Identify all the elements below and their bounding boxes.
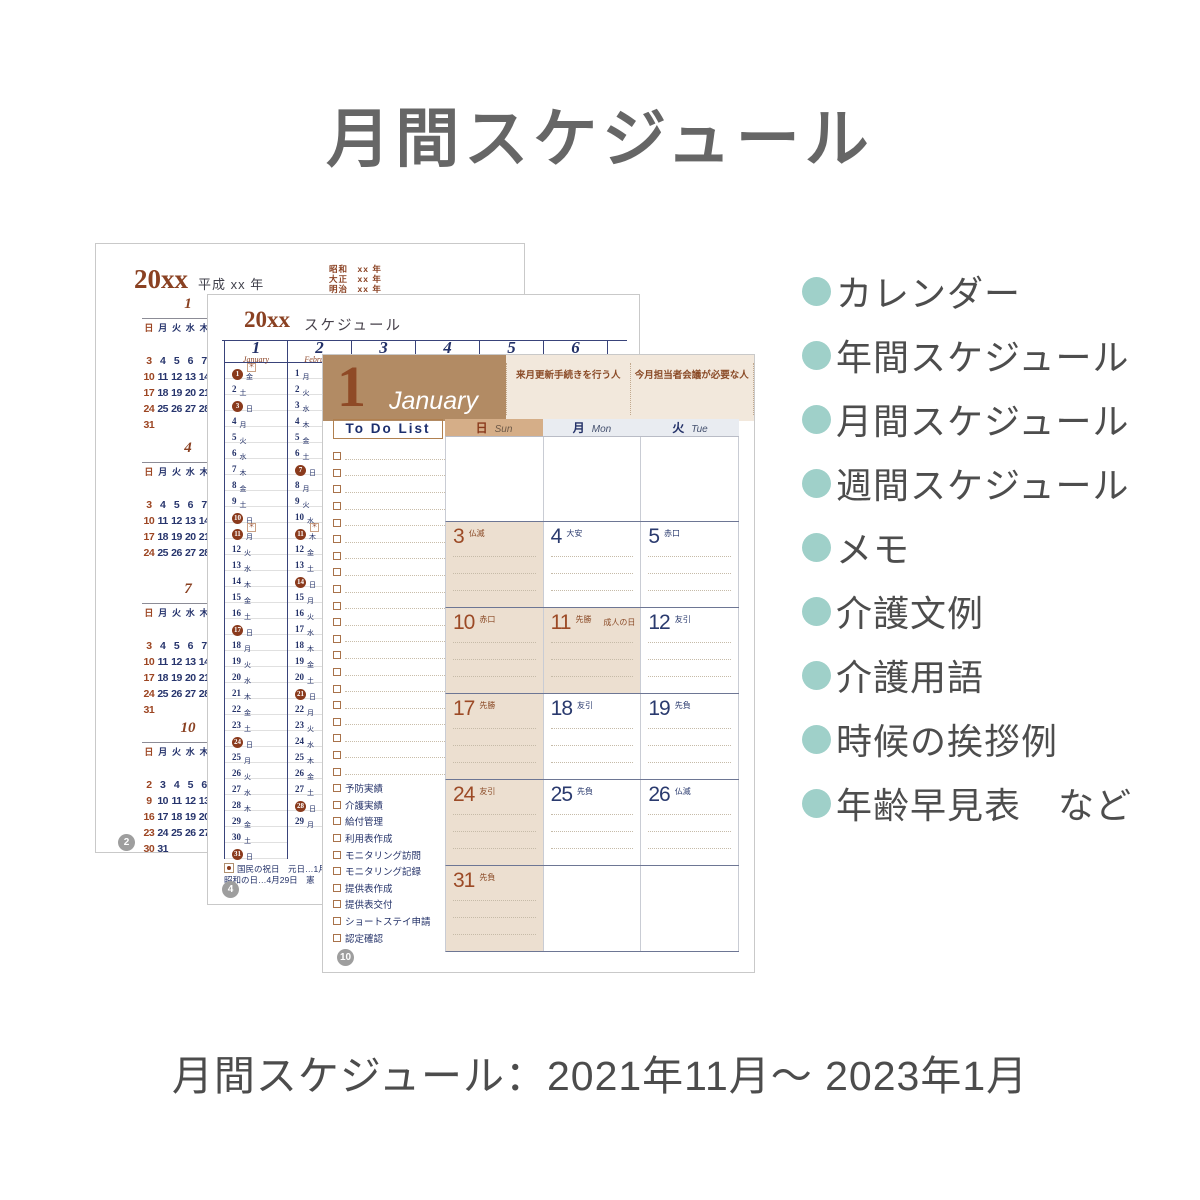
week-row: 17先勝18友引19先負: [445, 694, 739, 780]
todo-row: 給付管理: [333, 813, 445, 830]
day-cell: 18友引: [544, 694, 642, 779]
day-header-cell: 月Mon: [543, 419, 641, 436]
date-cell: 3: [142, 640, 156, 652]
day-cell: 12友引: [641, 608, 739, 693]
day-number: 24: [295, 736, 304, 746]
feature-item: 週間スケジュール: [802, 464, 1132, 502]
feature-label: 介護文例: [836, 585, 984, 637]
weekday-cell: 日: [142, 745, 156, 758]
schedule-day-row: 23土: [225, 715, 287, 731]
page-number-badge: 4: [222, 881, 239, 898]
checkbox-icon: [333, 734, 341, 742]
date-cell: 26: [170, 688, 184, 700]
checkbox-icon: [333, 917, 341, 925]
feature-item: 年齢早見表 など: [802, 784, 1132, 822]
minical-month-number: 10: [168, 720, 208, 740]
bullet-icon: [802, 469, 831, 498]
todo-row: [333, 763, 445, 780]
day-number: 22: [232, 704, 241, 714]
day-number: 14: [232, 576, 241, 586]
todo-row: [333, 714, 445, 731]
checkbox-icon: [333, 668, 341, 676]
rokuyo-label: 友引: [577, 701, 593, 710]
month-number: 3: [352, 341, 415, 355]
date-cell: 24: [156, 827, 170, 839]
todo-list: 予防実績介護実績給付管理利用表作成モニタリング訪問モニタリング記録提供表作成提供…: [333, 448, 445, 946]
weekday-cell: 火: [170, 745, 184, 758]
date-cell: 16: [142, 811, 156, 823]
weekday-cell: 火: [170, 606, 184, 619]
todo-row: [333, 548, 445, 565]
date-number: 24: [453, 783, 474, 806]
checkbox-icon: [333, 685, 341, 693]
rokuyo-label: 先負: [479, 873, 495, 882]
rokuyo-label: 仏滅: [469, 529, 485, 538]
writing-line: [453, 848, 536, 849]
schedule-day-row: 17日: [225, 619, 287, 635]
schedule-day-row: 28木: [225, 795, 287, 811]
date-cell: 19: [170, 672, 184, 684]
checkbox-icon: [333, 585, 341, 593]
date-cell: 6: [183, 355, 197, 367]
todo-writing-line: [345, 524, 445, 526]
day-number: 26: [232, 768, 241, 778]
todo-writing-line: [345, 541, 445, 543]
day-number: 15: [232, 592, 241, 602]
date-cell: 17: [142, 672, 156, 684]
day-number: 8: [295, 480, 300, 490]
weekday-cell: 日: [142, 321, 156, 334]
footnote-text: 国民の祝日 元日…1月: [237, 864, 327, 874]
date-cell: 24: [142, 547, 156, 559]
checkbox-icon: [333, 934, 341, 942]
schedule-day-row: 24日: [225, 731, 287, 747]
week-row: 24友引25先負26仏滅: [445, 780, 739, 866]
feature-label: 月間スケジュール: [836, 393, 1129, 445]
day-cell: 4大安: [544, 522, 642, 607]
schedule-day-row: 12火: [225, 539, 287, 555]
writing-line: [453, 659, 536, 660]
bullet-icon: [802, 533, 831, 562]
era-line: 昭和 xx 年: [329, 264, 382, 274]
month-number: 2: [288, 341, 351, 355]
day-number: 10: [295, 512, 304, 522]
holiday-mark-icon: ＊: [247, 363, 256, 372]
todo-row: [333, 647, 445, 664]
date-cell: 31: [142, 704, 156, 716]
writing-line: [453, 917, 536, 918]
writing-line: [648, 642, 731, 643]
day-number: 22: [295, 704, 304, 714]
todo-label: 給付管理: [345, 814, 383, 828]
day-header-cell: 日Sun: [445, 419, 543, 436]
date-cell: 13: [183, 515, 197, 527]
writing-line: [551, 831, 634, 832]
date-cell: 5: [170, 499, 184, 511]
schedule-day-row: 10日: [225, 507, 287, 523]
day-cell: [446, 437, 544, 521]
day-number: 29: [295, 816, 304, 826]
writing-line: [453, 590, 536, 591]
schedule-day-row: 14木: [225, 571, 287, 587]
month-name: January: [389, 387, 478, 416]
day-header-jp: 火: [672, 421, 684, 435]
weekday-cell: 日: [142, 465, 156, 478]
todo-label: 提供表作成: [345, 881, 393, 895]
minical-month-number: 1: [168, 296, 208, 316]
month-number: 4: [416, 341, 479, 355]
day-number: 15: [295, 592, 304, 602]
day-number: 26: [295, 768, 304, 778]
todo-label: モニタリング訪問: [345, 848, 421, 862]
date-cell: 26: [183, 827, 197, 839]
day-number: 3: [295, 400, 300, 410]
month-grid: 日Sun月Mon火Tue 3仏滅4大安5赤口10赤口11先勝成人の日12友引17…: [445, 419, 739, 952]
day-cell: 11先勝成人の日: [544, 608, 642, 693]
date-number: 4: [551, 525, 562, 548]
writing-line: [551, 590, 634, 591]
date-cell: 6: [183, 640, 197, 652]
feature-label: メモ: [836, 521, 910, 573]
day-number: 5: [232, 432, 237, 442]
date-number: 18: [551, 697, 572, 720]
day-header-cell: 火Tue: [641, 419, 739, 436]
week-row: 10赤口11先勝成人の日12友引: [445, 608, 739, 694]
todo-writing-line: [345, 756, 445, 758]
rokuyo-label: 先負: [577, 787, 593, 796]
month-header-band: 1 January 来月更新手続きを行う人今月担当者会議が必要な人: [323, 355, 754, 421]
date-cell: 10: [142, 515, 156, 527]
day-number: 4: [295, 416, 300, 426]
todo-row: [333, 730, 445, 747]
feature-item: 月間スケジュール: [802, 400, 1132, 438]
date-cell: 24: [142, 688, 156, 700]
todo-title: To Do List: [333, 419, 443, 439]
holiday-mark-icon: ＊: [247, 523, 256, 532]
date-cell: 3: [156, 779, 170, 791]
date-number: 11: [551, 611, 571, 634]
checkbox-icon: [333, 602, 341, 610]
weekday-cell: 火: [170, 465, 184, 478]
rokuyo-label: 先勝: [479, 701, 495, 710]
date-cell: 11: [156, 656, 170, 668]
holiday-legend-icon: [224, 863, 234, 873]
writing-line: [648, 556, 731, 557]
date-cell: 25: [156, 403, 170, 415]
todo-label: 予防実績: [345, 781, 383, 795]
weekday-cell: 水: [183, 606, 197, 619]
date-cell: 11: [156, 515, 170, 527]
month-weeks: 3仏滅4大安5赤口10赤口11先勝成人の日12友引17先勝18友引19先負24友…: [445, 437, 739, 952]
footnote-line: 昭和の日…4月29日 憲: [224, 875, 327, 886]
page-number-badge: 2: [118, 834, 135, 851]
feature-item: カレンダー: [802, 272, 1132, 310]
checkbox-icon: [333, 701, 341, 709]
todo-row: [333, 631, 445, 648]
todo-writing-line: [345, 640, 445, 642]
date-cell: 11: [170, 795, 184, 807]
writing-line: [453, 762, 536, 763]
date-cell: 25: [156, 547, 170, 559]
todo-row: [333, 581, 445, 598]
rokuyo-label: 先負: [675, 701, 691, 710]
writing-line: [453, 745, 536, 746]
checkbox-icon: [333, 817, 341, 825]
writing-line: [648, 590, 731, 591]
writing-line: [551, 676, 634, 677]
day-number: 29: [232, 816, 241, 826]
todo-writing-line: [345, 557, 445, 559]
weekday-cell: 日: [142, 606, 156, 619]
todo-row: [333, 680, 445, 697]
todo-row: [333, 498, 445, 515]
todo-label: 利用表作成: [345, 831, 393, 845]
day-number: 20: [232, 672, 241, 682]
date-cell: 18: [156, 672, 170, 684]
weekday-cell: 水: [183, 321, 197, 334]
day-number: 21: [232, 688, 241, 698]
bullet-icon: [802, 789, 831, 818]
week-row: 31先負: [445, 866, 739, 952]
writing-line: [551, 573, 634, 574]
writing-line: [453, 728, 536, 729]
checkbox-icon: [333, 718, 341, 726]
writing-line: [551, 762, 634, 763]
date-cell: 4: [156, 640, 170, 652]
day-number: 13: [232, 560, 241, 570]
checkbox-icon: [333, 768, 341, 776]
date-cell: 11: [156, 371, 170, 383]
todo-writing-line: [345, 574, 445, 576]
footnote-line: 国民の祝日 元日…1月: [224, 863, 327, 875]
writing-line: [453, 814, 536, 815]
schedule-day-row: 22金: [225, 699, 287, 715]
year-label: 20xx: [134, 264, 188, 295]
schedule-day-row: 1金＊: [225, 363, 287, 379]
footnotes: 国民の祝日 元日…1月 昭和の日…4月29日 憲: [224, 863, 327, 886]
todo-writing-line: [345, 707, 445, 709]
todo-writing-line: [345, 458, 445, 460]
date-cell: 4: [156, 355, 170, 367]
todo-label: 介護実績: [345, 798, 383, 812]
schedule-day-row: 9土: [225, 491, 287, 507]
date-number: 17: [453, 697, 474, 720]
date-cell: 4: [170, 779, 184, 791]
todo-row: [333, 747, 445, 764]
schedule-day-row: 5火: [225, 427, 287, 443]
month-banner: 1 January: [323, 355, 506, 421]
date-cell: 18: [156, 387, 170, 399]
schedule-day-row: 3日: [225, 395, 287, 411]
todo-writing-line: [345, 591, 445, 593]
writing-line: [453, 642, 536, 643]
todo-row: [333, 531, 445, 548]
date-cell: 5: [170, 355, 184, 367]
schedule-day-row: 13水: [225, 555, 287, 571]
day-number: 9: [232, 496, 237, 506]
day-weekday: 月: [307, 822, 314, 829]
date-cell: 19: [183, 811, 197, 823]
day-number: 2: [232, 384, 237, 394]
checkbox-icon: [333, 900, 341, 908]
todo-row: ショートステイ申請: [333, 913, 445, 930]
week-row: [445, 437, 739, 522]
date-cell: 30: [142, 843, 156, 855]
todo-writing-line: [345, 491, 445, 493]
todo-label: モニタリング記録: [345, 864, 421, 878]
day-number: 6: [232, 448, 237, 458]
todo-row: [333, 697, 445, 714]
day-number: 27: [232, 784, 241, 794]
todo-row: [333, 564, 445, 581]
todo-row: モニタリング訪問: [333, 846, 445, 863]
date-cell: 19: [170, 387, 184, 399]
checkbox-icon: [333, 552, 341, 560]
writing-line: [648, 831, 731, 832]
week-row: 3仏滅4大安5赤口: [445, 522, 739, 608]
date-cell: 25: [170, 827, 184, 839]
writing-line: [551, 728, 634, 729]
checkbox-icon: [333, 469, 341, 477]
date-cell: 27: [183, 403, 197, 415]
date-cell: 4: [156, 499, 170, 511]
day-number: 5: [295, 432, 300, 442]
writing-line: [648, 745, 731, 746]
feature-list: カレンダー年間スケジュール月間スケジュール週間スケジュールメモ介護文例介護用語時…: [802, 272, 1132, 822]
date-cell: 26: [170, 403, 184, 415]
day-number: 1: [295, 368, 300, 378]
day-number: 20: [295, 672, 304, 682]
weekday-cell: 月: [156, 606, 170, 619]
date-cell: 9: [142, 795, 156, 807]
todo-writing-line: [345, 474, 445, 476]
date-cell: 10: [142, 371, 156, 383]
schedule-day-row: 2土: [225, 379, 287, 395]
era-conversion: 昭和 xx 年大正 xx 年明治 xx 年: [329, 264, 382, 294]
todo-row: [333, 664, 445, 681]
writing-line: [648, 814, 731, 815]
checkbox-icon: [333, 851, 341, 859]
date-cell: 18: [156, 531, 170, 543]
day-header-jp: 日: [476, 421, 488, 435]
todo-row: [333, 597, 445, 614]
date-cell: 20: [183, 387, 197, 399]
date-cell: 5: [183, 779, 197, 791]
feature-label: 年間スケジュール: [836, 329, 1129, 381]
bullet-icon: [802, 597, 831, 626]
day-cell: 31先負: [446, 866, 544, 951]
holiday-name: 成人の日: [603, 617, 635, 628]
date-number: 12: [648, 611, 669, 634]
date-number: 26: [648, 783, 669, 806]
day-number: 12: [295, 544, 304, 554]
date-cell: 12: [170, 515, 184, 527]
note-label: 来月更新手続きを行う人: [506, 363, 630, 415]
feature-label: 時候の挨拶例: [836, 713, 1058, 765]
schedule-day-row: 8金: [225, 475, 287, 491]
bullet-icon: [802, 277, 831, 306]
checkbox-icon: [333, 519, 341, 527]
date-number: 5: [648, 525, 659, 548]
day-cell: [544, 437, 642, 521]
todo-writing-line: [345, 773, 445, 775]
date-cell: 10: [156, 795, 170, 807]
feature-item: 時候の挨拶例: [802, 720, 1132, 758]
todo-writing-line: [345, 740, 445, 742]
todo-row: [333, 448, 445, 465]
todo-row: 認定確認: [333, 929, 445, 946]
writing-line: [648, 848, 731, 849]
todo-label: 認定確認: [345, 931, 383, 945]
date-cell: 2: [142, 779, 156, 791]
writing-line: [648, 676, 731, 677]
date-cell: 27: [183, 547, 197, 559]
day-cell: [544, 866, 642, 951]
feature-label: カレンダー: [836, 265, 1021, 317]
weekday-cell: 火: [170, 321, 184, 334]
checkbox-icon: [333, 834, 341, 842]
schedule-day-row: 16土: [225, 603, 287, 619]
schedule-day-row: 21木: [225, 683, 287, 699]
rokuyo-label: 仏滅: [675, 787, 691, 796]
weekday-cell: 月: [156, 321, 170, 334]
date-cell: 31: [142, 419, 156, 431]
month-number: 1: [337, 355, 366, 419]
day-cell: 25先負: [544, 780, 642, 865]
month-number: 5: [480, 341, 543, 355]
rokuyo-label: 先勝: [575, 615, 591, 624]
month-number: 1: [225, 341, 287, 355]
date-cell: 13: [183, 656, 197, 668]
minical-month-number: 4: [168, 440, 208, 460]
date-number: 10: [453, 611, 474, 634]
day-header-row: 日Sun月Mon火Tue: [445, 419, 739, 437]
date-cell: 12: [170, 371, 184, 383]
day-number: 17: [295, 624, 304, 634]
day-cell: 24友引: [446, 780, 544, 865]
day-header-en: Mon: [592, 424, 611, 435]
day-number: 27: [295, 784, 304, 794]
feature-label: 年齢早見表 など: [836, 777, 1132, 829]
note-labels: 来月更新手続きを行う人今月担当者会議が必要な人: [506, 355, 754, 421]
day-number: 19: [295, 656, 304, 666]
writing-line: [551, 659, 634, 660]
checkbox-icon: [333, 651, 341, 659]
day-number: 28: [232, 800, 241, 810]
writing-line: [551, 556, 634, 557]
feature-label: 週間スケジュール: [836, 457, 1129, 509]
rokuyo-label: 友引: [479, 787, 495, 796]
weekday-cell: 月: [156, 745, 170, 758]
checkbox-icon: [333, 635, 341, 643]
todo-writing-line: [345, 624, 445, 626]
feature-item: 年間スケジュール: [802, 336, 1132, 374]
schedule-day-row: 29金: [225, 811, 287, 827]
page-title: 月間スケジュール: [0, 88, 1200, 180]
date-cell: 20: [183, 672, 197, 684]
day-cell: [641, 866, 739, 951]
day-header-en: Sun: [495, 424, 513, 435]
schedule-day-row: 11月＊: [225, 523, 287, 539]
date-cell: 12: [170, 656, 184, 668]
date-number: 19: [648, 697, 669, 720]
checkbox-icon: [333, 485, 341, 493]
writing-line: [453, 900, 536, 901]
schedule-day-row: 7木: [225, 459, 287, 475]
schedule-column-header: 1January: [225, 341, 287, 363]
weekday-cell: 水: [183, 465, 197, 478]
writing-line: [551, 745, 634, 746]
